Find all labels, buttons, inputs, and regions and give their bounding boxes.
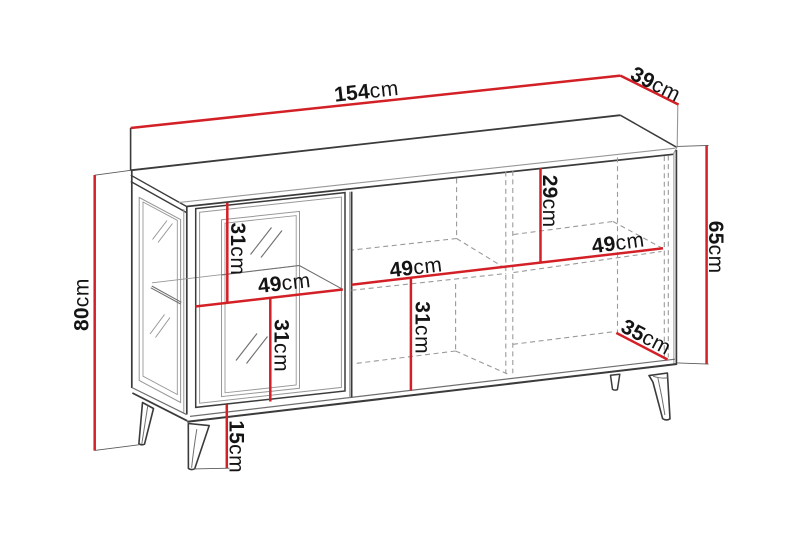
svg-text:65cm: 65cm xyxy=(704,221,727,274)
svg-text:31cm: 31cm xyxy=(411,301,434,354)
svg-text:31cm: 31cm xyxy=(226,223,249,276)
svg-text:15cm: 15cm xyxy=(225,420,248,473)
svg-text:80cm: 80cm xyxy=(71,278,94,331)
svg-text:31cm: 31cm xyxy=(270,319,293,372)
svg-text:29cm: 29cm xyxy=(538,175,561,228)
